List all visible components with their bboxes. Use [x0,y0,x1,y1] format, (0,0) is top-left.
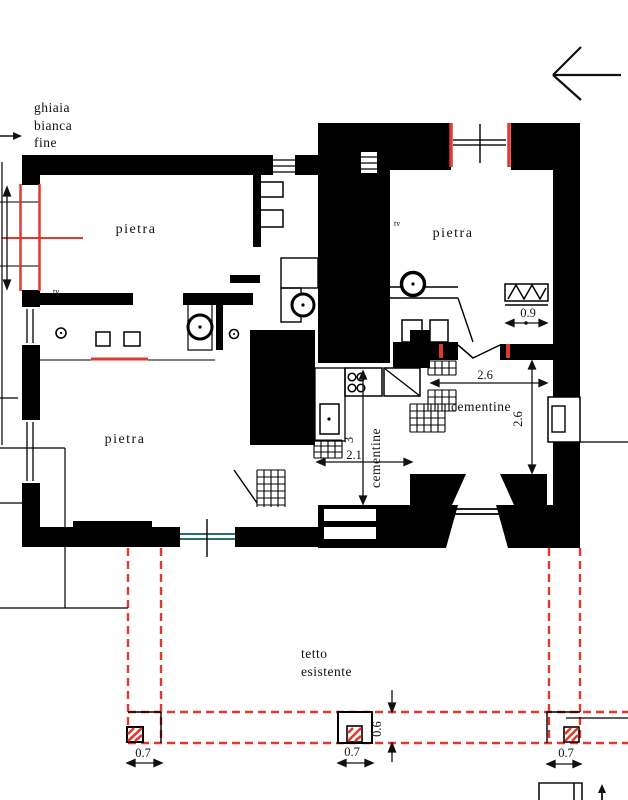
dim-label-radiator: 0.9 [520,306,536,320]
door-swing [234,470,257,503]
gravel-arrow-icon [0,132,22,140]
arrowhead [539,380,547,387]
roof-outline [128,548,628,743]
dim-dot [524,321,528,325]
door-jamb [430,505,458,548]
dim-label-pillar-left: 0.7 [135,746,151,760]
arrowhead [547,761,555,768]
big-left-arrow-icon [553,47,621,100]
arrowhead [529,361,536,369]
wall-segment-kitchen-west [250,330,315,445]
wall-segment-left [22,345,40,420]
door-splay-lines [458,345,500,358]
floor-plan-drawing: ghiaia bianca fine pietra pietra pietra … [0,0,628,800]
niche-pane [552,406,565,432]
column-dot [301,303,304,306]
wall-segment [410,330,430,368]
tile-hatch [257,470,285,507]
boiler-dot [198,325,201,328]
arrowhead [506,320,514,327]
room-label-dining: cementine [451,399,511,414]
tv-label-left: tv [53,287,59,296]
wall-segment [295,155,318,175]
dim-label-kitchen-width: 2.1 [346,448,362,462]
arrowhead [360,496,367,504]
radiator-zigzag [508,285,546,299]
window-left-lower [27,422,33,481]
gravel-note-line2: bianca [34,118,72,133]
arrowhead [573,761,581,768]
walls [22,123,580,548]
window-slot [324,527,376,539]
arrowhead [389,743,396,752]
tile-hatch [428,361,456,375]
gravel-note-line3: fine [34,135,57,150]
burner [348,373,356,381]
wall-segment-bottom [22,527,180,547]
wall-segment-bottom [235,527,318,547]
window-left-upper [27,309,33,343]
arrowhead [365,760,373,767]
window-slot [324,509,376,521]
tv-label-right: tv [394,219,400,228]
boiler-dot [411,282,414,285]
stair-step [281,258,318,288]
arrowhead [4,187,11,196]
up-arrow-icon [598,784,606,800]
pillars [127,712,580,743]
room-label-top-left: pietra [116,222,157,237]
room-label-top-right: pietra [433,226,474,241]
dim-label-pillar-right: 0.7 [558,746,574,760]
roof-note-line2: esistente [301,664,352,679]
arrowhead [317,459,325,466]
fixture-box [124,332,140,346]
wall-segment [22,155,273,175]
wall-segment [511,123,580,170]
chair [430,320,448,342]
arrowhead [529,465,536,473]
wall-stub [216,298,223,350]
sink-diagonal [384,368,420,396]
shelf [260,182,283,197]
arrowhead [389,703,396,712]
door-jamb [496,505,580,548]
dim-label-roof-edge: 0.6 [370,721,384,737]
dim-label-kitchen-depth: 3 [342,437,356,443]
arrowhead [404,459,412,466]
roof-note-line1: tetto [301,646,328,661]
fixture-dot [60,332,62,334]
appliance-dot [327,417,330,420]
scale-bar-fragment [539,783,582,800]
arrowhead [360,371,367,379]
arrowhead [127,760,135,767]
door-jamb [500,474,547,505]
arrowhead [431,380,439,387]
arrowhead [154,760,162,767]
dim-label-dining-depth: 2.6 [511,411,525,427]
arrowhead [338,760,346,767]
door-jamb [410,474,466,505]
burner [357,384,365,392]
dim-label-pillar-middle: 0.7 [344,745,360,759]
counter-diagonal [458,298,473,342]
shelf [260,210,283,227]
wall-ledge [73,521,152,528]
room-label-kitchen-floor: cementine [368,428,383,488]
gravel-note-line1: ghiaia [34,100,70,115]
floor-plan-sheet: ghiaia bianca fine pietra pietra pietra … [0,0,628,800]
wall-segment [22,293,133,305]
fixture-dot [233,333,235,335]
arrowhead [539,320,547,327]
wall-stub [230,275,260,283]
fixture-box [96,332,110,346]
dimensions [4,187,582,768]
room-label-bottom-left: pietra [105,432,146,447]
arrowhead [4,280,11,289]
wall-segment-chimney [318,123,390,363]
dim-label-dining-width: 2.6 [477,368,493,382]
burner [348,384,356,392]
tile-hatch [314,440,342,458]
wall-segment-left [22,175,40,185]
wall-segment-right [553,170,580,397]
